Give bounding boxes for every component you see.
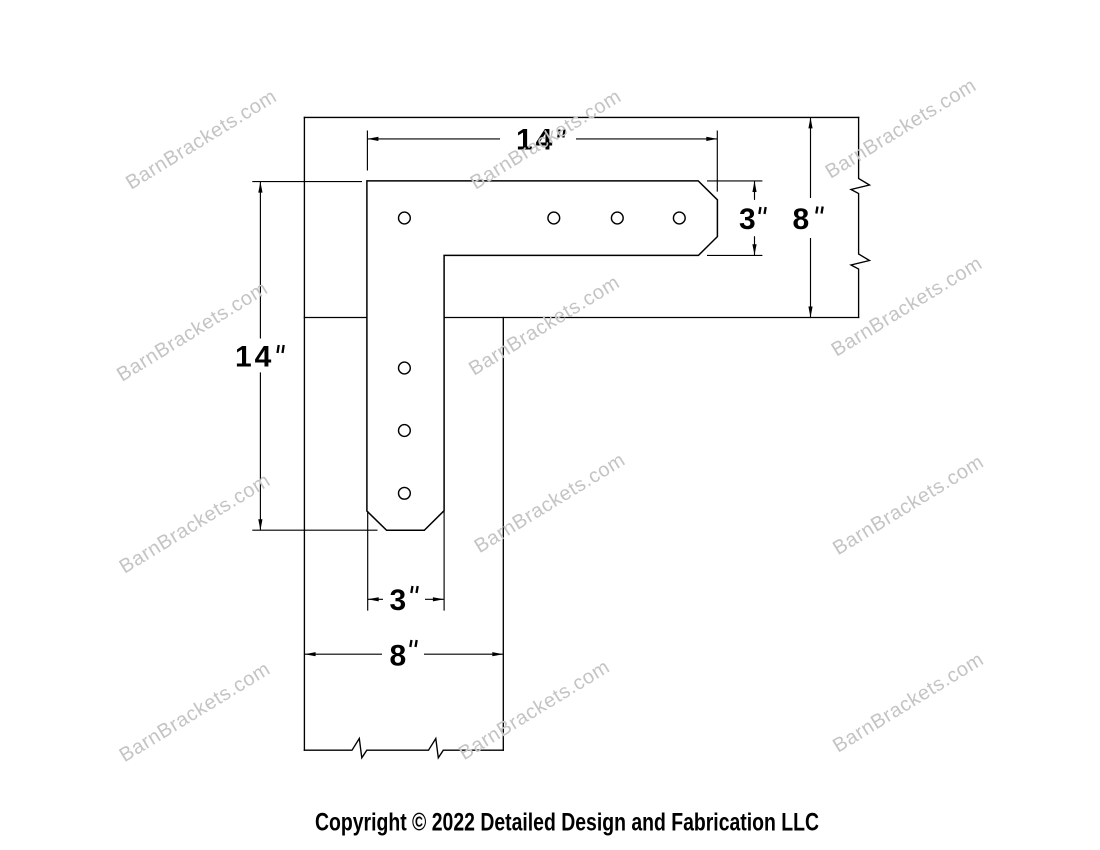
svg-text:8: 8 <box>390 639 407 672</box>
svg-text:8: 8 <box>793 203 810 236</box>
svg-text:3: 3 <box>739 203 756 236</box>
svg-text:Copyright © 2022 Detailed Desi: Copyright © 2022 Detailed Design and Fab… <box>315 809 819 837</box>
svg-text:14: 14 <box>235 341 274 374</box>
svg-text:3: 3 <box>390 584 407 617</box>
